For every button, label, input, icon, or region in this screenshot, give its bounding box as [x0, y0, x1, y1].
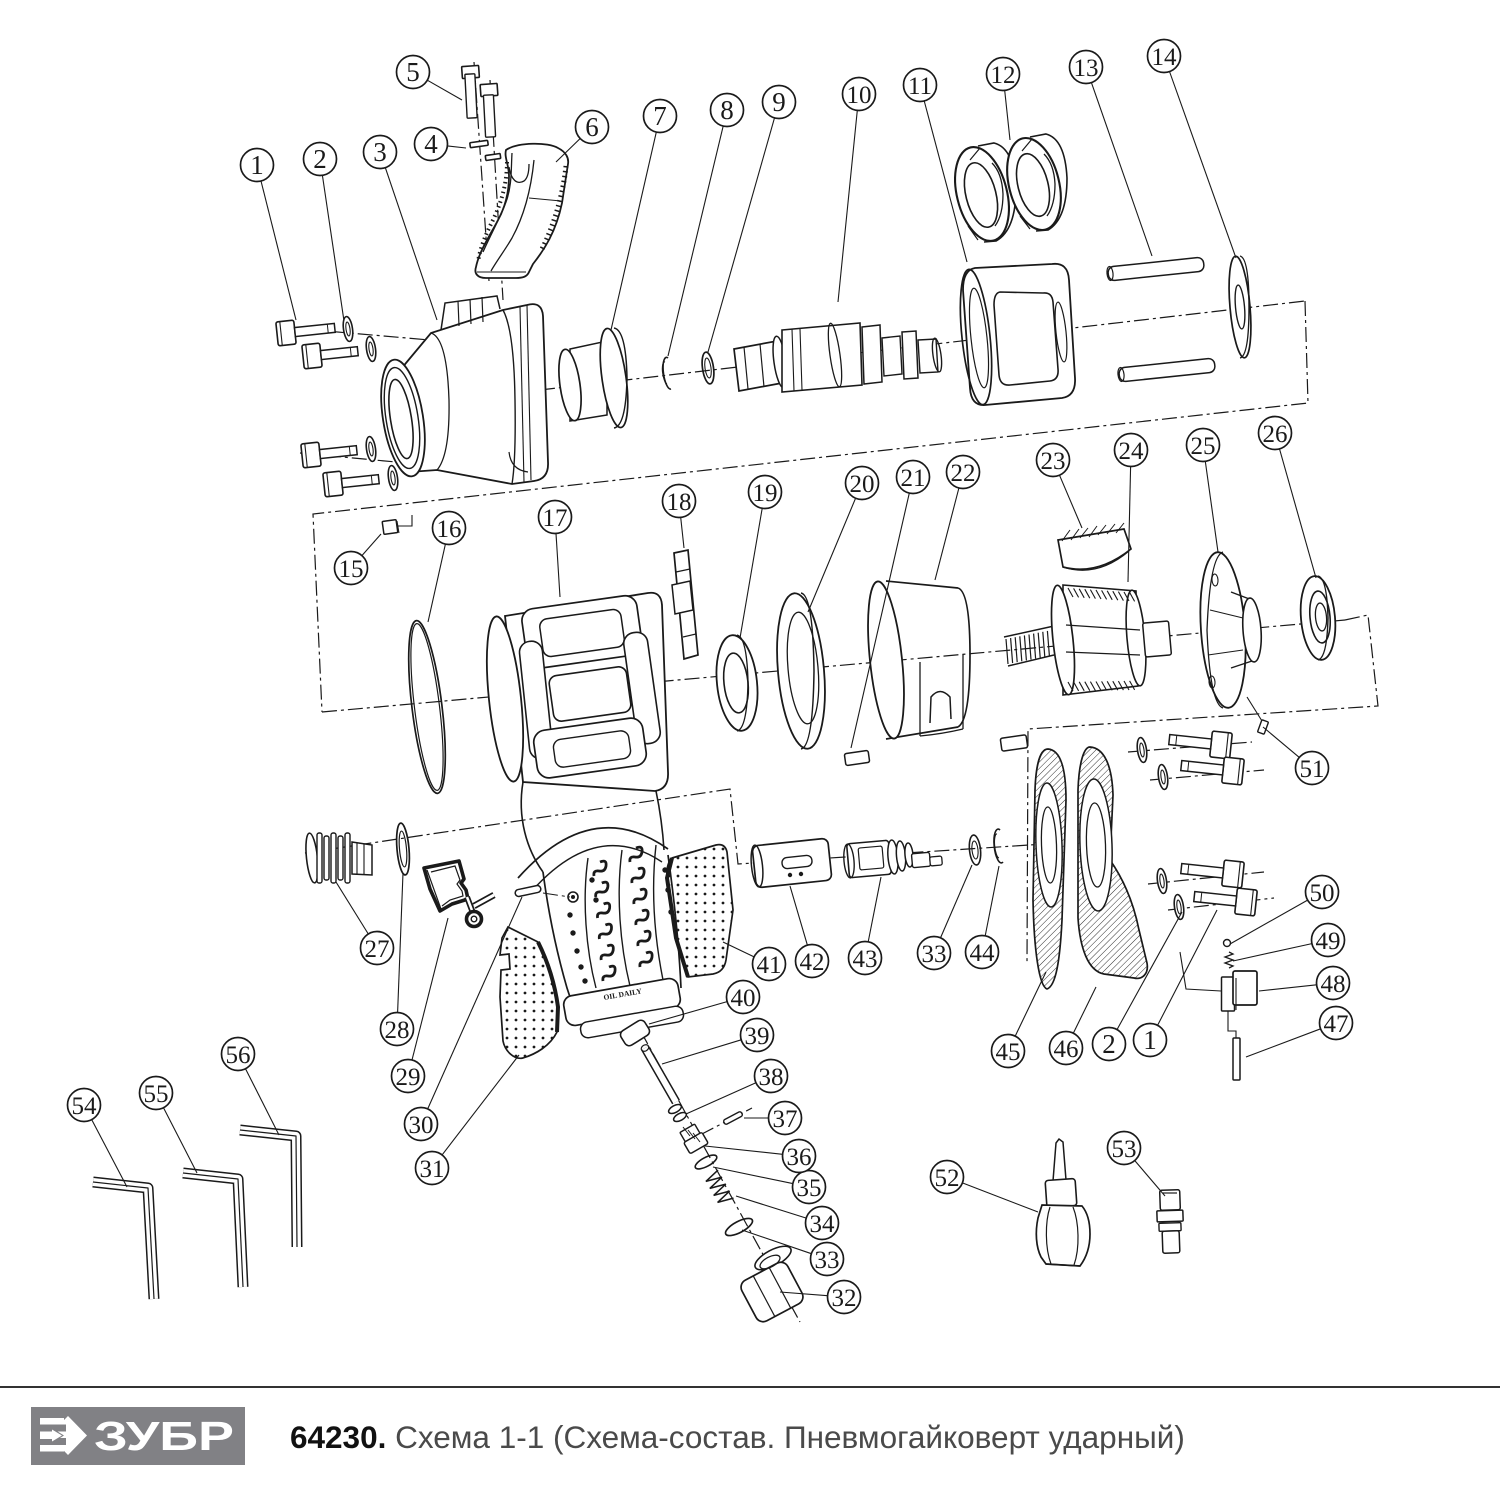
svg-text:27: 27: [365, 936, 390, 963]
svg-text:1: 1: [1143, 1025, 1157, 1055]
svg-text:22: 22: [951, 460, 976, 487]
svg-text:48: 48: [1321, 971, 1346, 998]
svg-text:24: 24: [1119, 438, 1145, 465]
svg-text:39: 39: [745, 1023, 770, 1050]
svg-text:28: 28: [385, 1017, 410, 1044]
svg-text:11: 11: [908, 73, 932, 100]
svg-text:2: 2: [1102, 1029, 1116, 1059]
svg-text:64230. Схема 1-1 (Схема-состав: 64230. Схема 1-1 (Схема-состав. Пневмога…: [290, 1419, 1185, 1455]
svg-text:8: 8: [720, 95, 734, 125]
svg-text:13: 13: [1074, 55, 1099, 82]
svg-text:9: 9: [772, 87, 786, 117]
svg-text:12: 12: [991, 62, 1016, 89]
svg-text:35: 35: [797, 1175, 822, 1202]
svg-text:20: 20: [850, 471, 875, 498]
svg-text:53: 53: [1112, 1136, 1137, 1163]
svg-text:23: 23: [1041, 448, 1066, 475]
svg-text:16: 16: [437, 516, 462, 543]
svg-text:38: 38: [759, 1064, 784, 1091]
svg-text:25: 25: [1191, 433, 1216, 460]
svg-text:52: 52: [935, 1165, 960, 1192]
svg-text:18: 18: [667, 489, 692, 516]
svg-text:17: 17: [543, 505, 568, 532]
svg-text:40: 40: [731, 985, 756, 1012]
svg-text:26: 26: [1263, 421, 1288, 448]
svg-text:10: 10: [847, 82, 872, 109]
svg-text:19: 19: [753, 480, 778, 507]
svg-text:30: 30: [409, 1112, 434, 1139]
svg-text:2: 2: [313, 144, 327, 174]
svg-text:55: 55: [144, 1081, 169, 1108]
svg-text:56: 56: [226, 1042, 251, 1069]
svg-text:7: 7: [653, 101, 667, 131]
svg-text:6: 6: [585, 112, 599, 142]
svg-text:49: 49: [1316, 928, 1341, 955]
svg-text:54: 54: [72, 1093, 98, 1120]
svg-text:43: 43: [853, 946, 878, 973]
svg-text:5: 5: [406, 57, 420, 87]
svg-text:33: 33: [922, 941, 947, 968]
svg-text:ЗУБР: ЗУБР: [94, 1413, 234, 1459]
svg-text:51: 51: [1300, 756, 1325, 783]
svg-text:4: 4: [424, 129, 438, 159]
svg-text:42: 42: [800, 949, 825, 976]
svg-text:31: 31: [420, 1156, 445, 1183]
svg-text:15: 15: [339, 556, 364, 583]
svg-text:41: 41: [757, 952, 782, 979]
svg-text:45: 45: [996, 1039, 1021, 1066]
svg-text:36: 36: [787, 1144, 812, 1171]
svg-text:29: 29: [396, 1064, 421, 1091]
svg-text:21: 21: [901, 465, 926, 492]
svg-text:44: 44: [970, 940, 996, 967]
svg-text:47: 47: [1324, 1011, 1349, 1038]
svg-text:1: 1: [250, 150, 264, 180]
svg-text:50: 50: [1310, 880, 1335, 907]
svg-text:3: 3: [373, 137, 387, 167]
svg-text:34: 34: [810, 1211, 836, 1238]
svg-text:46: 46: [1054, 1036, 1079, 1063]
svg-text:32: 32: [832, 1285, 857, 1312]
svg-text:14: 14: [1152, 44, 1178, 71]
svg-text:33: 33: [815, 1247, 840, 1274]
svg-text:37: 37: [773, 1106, 798, 1133]
